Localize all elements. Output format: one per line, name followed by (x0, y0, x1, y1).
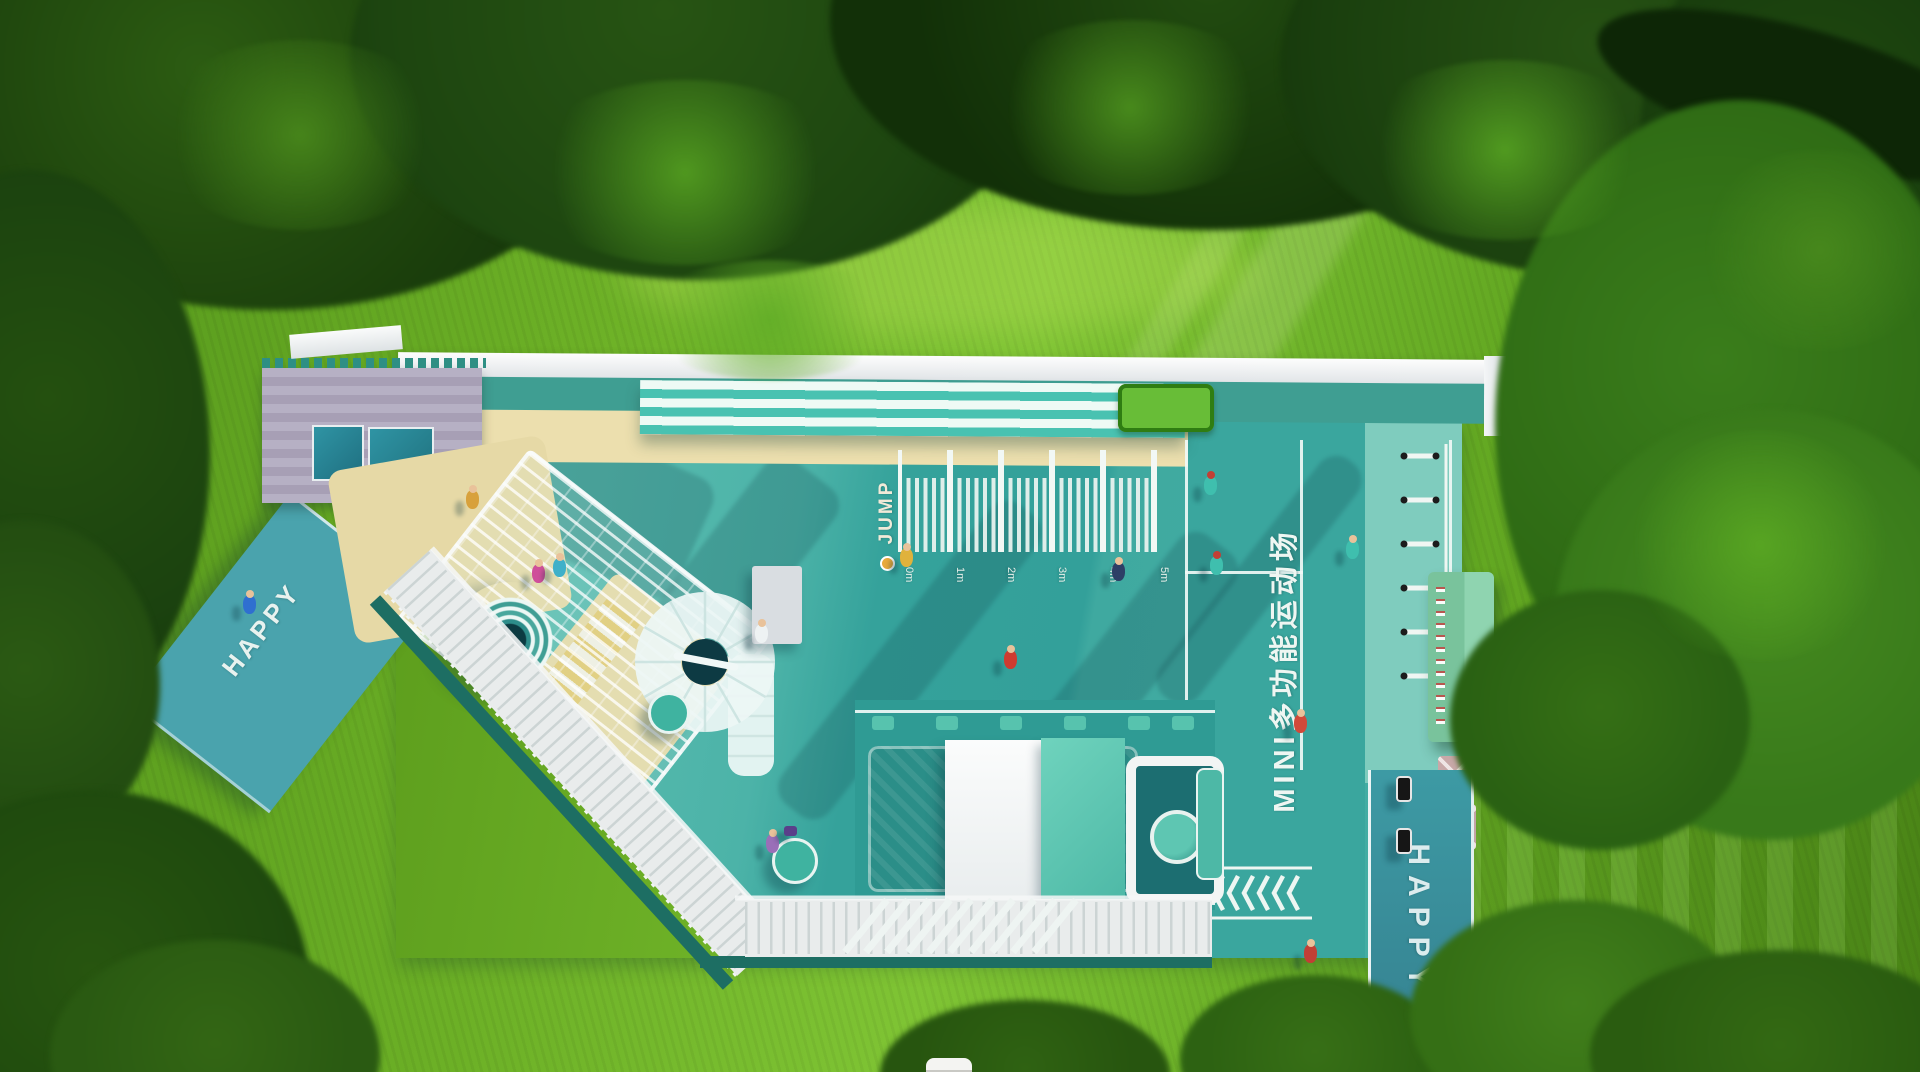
leaf-cluster (520, 80, 850, 265)
person-on-bike (1204, 476, 1217, 495)
leaf-cluster (150, 40, 450, 230)
mini-court-text: MINI多功能运动场 (1261, 475, 1295, 865)
person (553, 558, 566, 577)
ruler-label-1m: 1m (938, 567, 966, 581)
jump-ruler (896, 448, 1168, 570)
ruler-label-5m: 5m (1142, 567, 1170, 581)
person (900, 548, 913, 567)
ruler-label-0m: 0m (887, 567, 915, 581)
round-table (648, 692, 690, 734)
person (243, 595, 256, 614)
ruler-label-2m: 2m (989, 567, 1017, 581)
leaf-cluster (1350, 60, 1660, 240)
leaf-cluster (980, 20, 1280, 195)
person (532, 564, 545, 583)
person (1346, 540, 1359, 559)
playground-aerial-render: HAPPY (0, 0, 1920, 1072)
leaf-cluster (640, 260, 900, 380)
leaf-cluster (1620, 430, 1900, 660)
train-rail-top (855, 710, 1215, 713)
person (1304, 944, 1317, 963)
deck-bench (289, 325, 403, 359)
ruler-label-3m: 3m (1040, 567, 1068, 581)
train-awning-white (945, 740, 1041, 902)
train-nose (1196, 768, 1224, 880)
shade-canopy-striped (640, 380, 1185, 438)
kiosk-signage (1436, 584, 1445, 724)
person (755, 624, 768, 643)
person (466, 490, 479, 509)
chevron-left-icons (1214, 876, 1298, 910)
gym-machine (1396, 828, 1412, 854)
train-canopy-mint (1041, 738, 1125, 908)
ruler-major-ticks (898, 450, 1160, 552)
gym-machine (1396, 776, 1412, 802)
person (1004, 650, 1017, 669)
person-on-bike (1210, 556, 1223, 575)
green-mound (1118, 384, 1214, 432)
person (1112, 562, 1125, 581)
bush-bottom (880, 1000, 1170, 1072)
person (766, 834, 779, 853)
stroller (784, 826, 797, 836)
person (1294, 714, 1307, 733)
deck-fence-comb (262, 358, 486, 368)
train-seat (872, 716, 894, 730)
logo-partial (926, 1058, 972, 1072)
